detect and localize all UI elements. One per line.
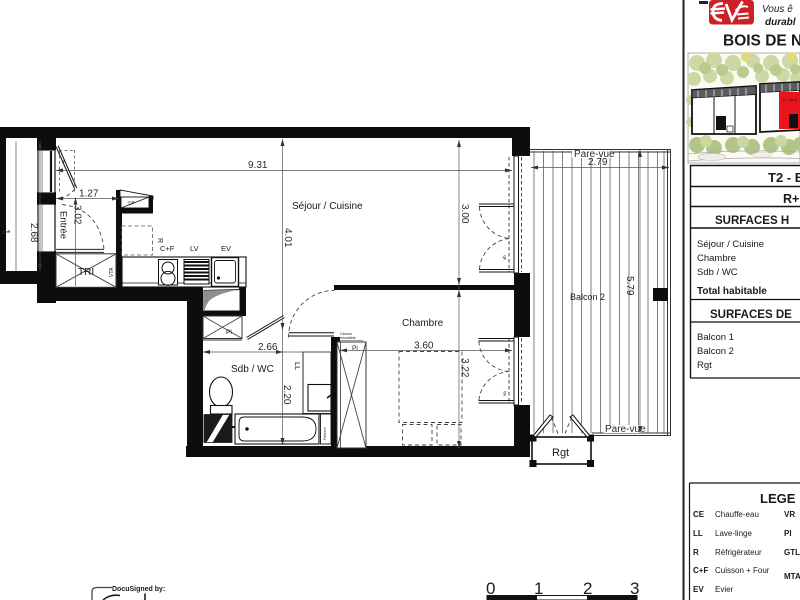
svg-text:R+: R+ (783, 192, 799, 206)
svg-text:va: va (502, 391, 507, 396)
svg-text:2.68: 2.68 (28, 223, 39, 243)
svg-text:3.22: 3.22 (459, 358, 470, 378)
svg-text:4.01: 4.01 (282, 228, 293, 248)
svg-text:Entrée: Entrée (58, 211, 69, 239)
svg-text:9.31: 9.31 (248, 160, 268, 171)
svg-text:T2 - Bât B: T2 - Bât B (783, 98, 797, 102)
svg-text:1: 1 (0, 229, 11, 235)
svg-text:R: R (693, 548, 699, 557)
svg-text:Vous ê: Vous ê (762, 4, 793, 15)
svg-text:DocuSigned by:: DocuSigned by: (112, 586, 165, 593)
svg-text:2.79: 2.79 (588, 157, 608, 168)
svg-text:LL: LL (693, 529, 703, 538)
svg-text:Pl: Pl (352, 345, 358, 352)
svg-text:R: R (156, 238, 163, 243)
svg-text:TRI: TRI (78, 267, 94, 278)
svg-text:Pl: Pl (226, 329, 232, 336)
svg-text:Balcon 2: Balcon 2 (570, 292, 605, 302)
svg-text:SURFACES DE: SURFACES DE (710, 309, 792, 321)
svg-text:T2 - B: T2 - B (768, 170, 800, 185)
svg-text:EV: EV (221, 244, 231, 253)
svg-text:C+F: C+F (160, 244, 175, 253)
svg-text:Chauffe-eau: Chauffe-eau (715, 510, 759, 519)
svg-text:Balcon 1: Balcon 1 (697, 332, 734, 343)
svg-text:Evier: Evier (715, 585, 734, 594)
svg-text:LL: LL (293, 362, 302, 370)
svg-text:LV: LV (190, 244, 199, 253)
svg-text:EV: EV (693, 585, 704, 594)
svg-text:1.27: 1.27 (79, 189, 99, 200)
svg-text:Réfrigérateur: Réfrigérateur (715, 548, 762, 557)
svg-text:Séjour / Cuisine: Séjour / Cuisine (292, 201, 363, 212)
svg-text:VR: VR (784, 510, 795, 519)
svg-text:5.79: 5.79 (624, 276, 635, 296)
svg-text:Lave-linge: Lave-linge (715, 529, 752, 538)
svg-text:3.00: 3.00 (459, 204, 470, 224)
svg-text:Sdb / WC: Sdb / WC (697, 267, 738, 278)
svg-text:vb: vb (502, 255, 507, 260)
svg-text:SURFACES H: SURFACES H (715, 215, 789, 227)
svg-text:3.02: 3.02 (72, 205, 83, 225)
svg-text:LEGE: LEGE (760, 491, 796, 506)
svg-text:démontable: démontable (337, 336, 356, 340)
svg-text:Cuisson + Four: Cuisson + Four (715, 566, 770, 575)
svg-text:durabl: durabl (765, 17, 796, 28)
svg-text:2.66: 2.66 (258, 342, 278, 353)
svg-text:Rgt: Rgt (552, 447, 569, 459)
svg-text:Total habitable: Total habitable (697, 286, 767, 297)
svg-text:3.60: 3.60 (414, 341, 434, 352)
svg-text:Rgt: Rgt (697, 360, 712, 371)
svg-text:Faïence: Faïence (323, 427, 327, 440)
svg-text:BOIS DE N: BOIS DE N (723, 33, 800, 50)
svg-text:Séjour / Cuisine: Séjour / Cuisine (697, 239, 764, 250)
svg-text:2.20: 2.20 (281, 385, 292, 405)
svg-text:Chambre: Chambre (697, 253, 736, 264)
svg-text:GTL: GTL (784, 548, 800, 557)
svg-text:C+F: C+F (693, 566, 708, 575)
svg-text:PI: PI (784, 529, 792, 538)
svg-text:CE: CE (693, 510, 705, 519)
svg-text:Sdb / WC: Sdb / WC (231, 364, 274, 375)
svg-text:VTA: VTA (109, 267, 115, 277)
svg-text:MTA: MTA (784, 572, 800, 581)
svg-text:Chambre: Chambre (402, 318, 444, 329)
svg-text:Balcon 2: Balcon 2 (697, 346, 734, 357)
